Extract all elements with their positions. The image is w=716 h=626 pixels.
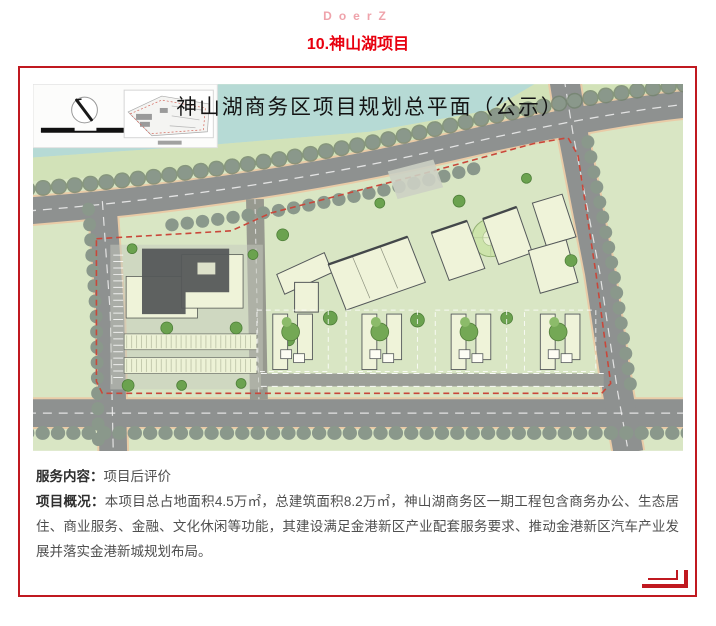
overview-label: 项目概况： [36,494,105,509]
compass-icon [71,97,97,123]
page-title: 10.神山湖项目 [0,30,716,54]
content-frame: 神山湖商务区项目规划总平面（公示） 服务内容：项目后评价 项目概况：本项目总占地… [18,66,697,597]
service-value: 项目后评价 [104,469,172,484]
roof-skylight [197,263,215,275]
service-label: 服务内容： [36,469,104,484]
site-plan-image: 神山湖商务区项目规划总平面（公示） [33,84,683,451]
service-line: 服务内容：项目后评价 [36,464,679,489]
corner-bracket-decoration [640,566,688,588]
site-plan-title: 神山湖商务区项目规划总平面（公示） [176,96,563,119]
article-page: DoerZ 10.神山湖项目 [0,0,716,626]
overview-value: 本项目总占地面积4.5万㎡，总建筑面积8.2万㎡，神山湖商务区一期工程包含商务办… [36,494,679,559]
corner-bracket-outer [642,570,688,588]
project-details: 服务内容：项目后评价 项目概况：本项目总占地面积4.5万㎡，总建筑面积8.2万㎡… [36,464,679,564]
site-plan-figure: 神山湖商务区项目规划总平面（公示） [33,84,683,451]
thumbnail-caption [157,141,181,145]
inner-lane [260,374,603,387]
overview-line: 项目概况：本项目总占地面积4.5万㎡，总建筑面积8.2万㎡，神山湖商务区一期工程… [36,489,679,564]
west-parcel [110,244,263,392]
brand-logo-text: DoerZ [0,0,716,23]
